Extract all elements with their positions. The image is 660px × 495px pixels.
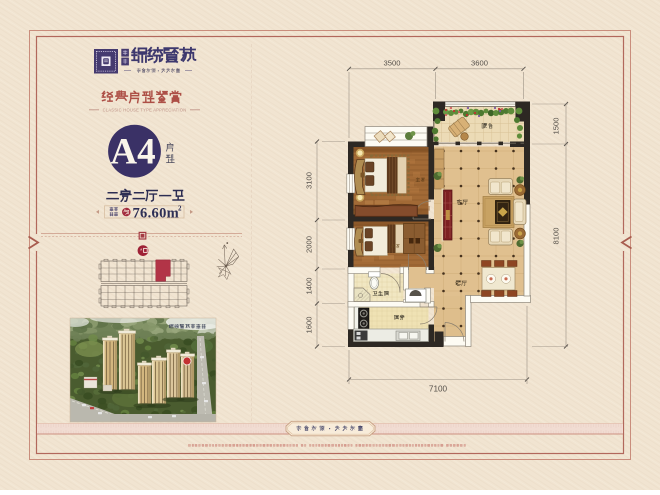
svg-text:1600: 1600 (305, 317, 314, 334)
svg-text:2000: 2000 (305, 236, 314, 253)
svg-text:CLASSIC HOUSE TYPE APPRECIATIO: CLASSIC HOUSE TYPE APPRECIATION (103, 107, 187, 112)
svg-text:2: 2 (178, 205, 182, 213)
svg-text:76.60m: 76.60m (133, 205, 180, 221)
svg-text:3100: 3100 (305, 172, 314, 189)
svg-text:1400: 1400 (305, 278, 314, 295)
svg-text:A4: A4 (110, 132, 155, 173)
svg-text:7100: 7100 (429, 385, 448, 394)
svg-text:8100: 8100 (552, 228, 561, 245)
svg-text:3600: 3600 (471, 59, 488, 68)
svg-text:3500: 3500 (384, 59, 401, 68)
svg-text:1500: 1500 (552, 118, 561, 135)
